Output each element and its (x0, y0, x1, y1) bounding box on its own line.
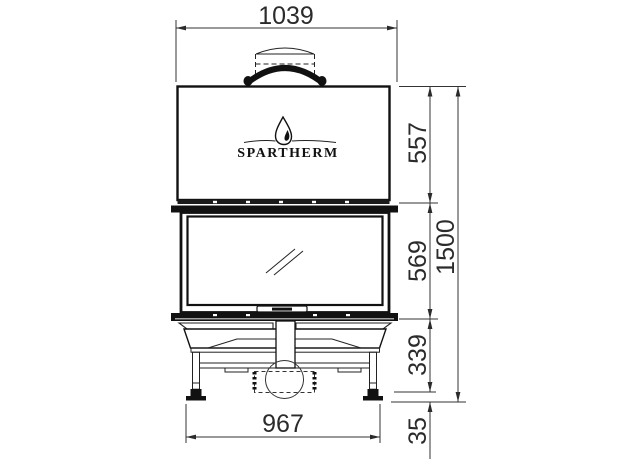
flue-collar (244, 48, 327, 86)
vent-gap (246, 201, 250, 203)
arrowhead (176, 26, 186, 31)
dim-chain-right: 557 569 339 35 (404, 87, 432, 460)
logo-swoosh-left (244, 141, 276, 143)
vent-strip (178, 200, 390, 204)
brand-logo: SPARTHERM (237, 117, 338, 161)
ledge-gap (346, 314, 350, 316)
dim-label-foot-height: 35 (404, 417, 432, 445)
dim-bottom-width: 967 (186, 404, 380, 443)
arrowhead (428, 309, 433, 319)
rail-tab-right (338, 368, 361, 372)
flame-icon-inner (285, 130, 290, 141)
leg-left (193, 352, 200, 389)
foot-right-plate (363, 396, 383, 401)
upper-body-panel (178, 87, 390, 201)
foot-right-stem (368, 389, 379, 397)
bottom-ledge-band (171, 313, 398, 321)
vent-gap (345, 201, 349, 203)
dim-label-base-section: 339 (404, 334, 432, 376)
foot-left-stem (191, 389, 202, 397)
vent-strip-bar (178, 200, 390, 204)
bottom-ledge-line (175, 318, 394, 319)
door-handle-grip (272, 308, 292, 311)
ledge-gap (246, 314, 250, 316)
collar-band-arc (246, 68, 324, 84)
base-assembly (179, 321, 391, 401)
dim-label-top-width: 1039 (258, 2, 314, 30)
door-section (181, 213, 389, 313)
arrowhead (428, 382, 433, 392)
arrowhead (387, 26, 397, 31)
vent-gap (279, 201, 283, 203)
dim-label-door-section: 569 (404, 240, 432, 282)
arrowhead (428, 87, 433, 97)
dim-label-upper-section: 557 (404, 122, 432, 164)
arrowhead (428, 319, 433, 329)
arrowhead (456, 87, 461, 97)
dim-label-bottom-width: 967 (262, 410, 304, 438)
glass-pane (188, 217, 383, 306)
vent-gap (213, 201, 217, 203)
leg-right (370, 352, 377, 389)
ledge-gap (313, 314, 317, 316)
technical-drawing-canvas: SPARTHERM (0, 0, 624, 460)
ledge-gap (213, 314, 217, 316)
arrowhead (456, 392, 461, 402)
arrowhead (428, 203, 433, 213)
logo-swoosh-right (292, 141, 336, 143)
arrowhead (186, 435, 196, 440)
collar-clamp-right (318, 76, 327, 86)
arrowhead (370, 435, 380, 440)
foot-left-plate (186, 396, 206, 401)
base-plate-right (296, 323, 391, 329)
base-plate-left (179, 323, 273, 329)
dim-total-height: 1500 (432, 87, 460, 403)
arrowhead (428, 193, 433, 203)
bottom-ledge-bar (171, 313, 398, 321)
fireplace-dimension-drawing: SPARTHERM (0, 0, 624, 460)
arrowhead (428, 402, 433, 412)
flame-icon (276, 117, 292, 145)
door-frame (181, 213, 389, 313)
vent-gap (312, 201, 316, 203)
rail-tab-left (225, 368, 248, 372)
collar-clamp-left (244, 76, 253, 86)
dim-label-total-height: 1500 (432, 219, 460, 275)
spigot-hidden-outline (255, 372, 315, 393)
collar-lid-arc (256, 48, 314, 54)
brand-text: SPARTHERM (237, 146, 338, 161)
